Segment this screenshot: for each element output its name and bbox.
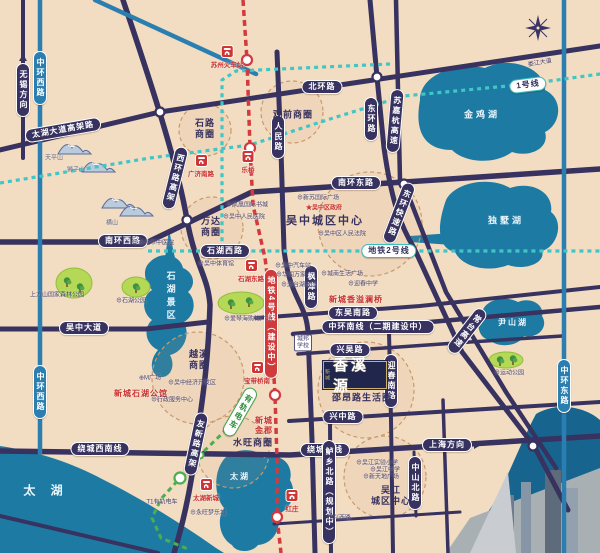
station-icon	[245, 259, 258, 272]
district-label: 观前商圈	[273, 109, 313, 120]
poi-label: ⊕城南生活广场	[321, 271, 363, 279]
lake-label: 尹山湖	[498, 318, 528, 328]
road-label: 上海方向	[422, 438, 472, 452]
lake-label: 独墅湖	[488, 215, 524, 226]
poi-label: ⊕永旺梦乐城	[190, 510, 226, 518]
lake-label: 金鸡湖	[464, 109, 500, 120]
direction-arrow-icon	[474, 441, 481, 449]
road-label: 北环路	[302, 80, 343, 94]
poi-label: ⊕吴中体育馆	[198, 261, 234, 269]
road-label: 东环快速路	[381, 181, 417, 246]
poi-label: 城邦 学校	[294, 334, 312, 351]
station-marker: 红庄	[286, 489, 299, 513]
road-label: 太湖大道高架路	[24, 116, 102, 143]
poi-label: ⊕石湖公园	[116, 298, 146, 306]
station-marker: 广济南路	[188, 154, 214, 178]
station-label: 广济南路	[188, 168, 214, 178]
poi-label: ★吴中区政府	[306, 205, 342, 213]
project-label: 新城 金郡	[255, 416, 273, 436]
project-logo-brand: 新城	[324, 369, 331, 381]
station-icon	[242, 150, 255, 163]
station-marker: 石湖东路	[238, 259, 264, 283]
road-label: 东吴南路	[328, 306, 378, 320]
lake-label: 太湖	[230, 472, 250, 482]
metro-label: 有轨电车	[220, 385, 259, 439]
district-label: 万达 商圈	[201, 216, 221, 239]
road-label: 苏嘉杭高速	[385, 89, 405, 154]
district-label: 吴中城区中心	[286, 215, 364, 229]
poi-label: T1有轨电车	[146, 499, 177, 507]
road-label: 鲈乡北路（规划中）	[322, 440, 336, 544]
station-icon	[200, 478, 213, 491]
district-label: 吴江 城区中心	[371, 485, 411, 508]
station-marker: 宝带桥南	[244, 361, 270, 385]
road-label: 绕城西南线	[71, 442, 130, 456]
road-label: 西环路高架	[160, 145, 189, 210]
station-label: 太湖新城	[193, 492, 219, 502]
station-label: 苏州火车站	[211, 59, 244, 69]
project-label: 新城香溢澜桥	[329, 295, 383, 305]
station-marker: 苏州火车站	[211, 45, 244, 69]
poi-label: ⊕吴中汽车站	[275, 263, 311, 271]
poi-label: ⊕新天地广场	[363, 474, 399, 482]
road-label: 中环西路	[33, 365, 47, 419]
poi-label: 天平山	[45, 155, 63, 163]
poi-label: 娄江大道	[528, 58, 553, 70]
metro-label: 1号线	[509, 76, 548, 94]
road-label: 人民路	[271, 115, 285, 159]
station-label: 红庄	[286, 503, 299, 513]
road-label: 无锡方向	[16, 63, 30, 117]
road-label: 中环东路	[557, 359, 571, 413]
road-label: 中环南线（二期建设中）	[322, 320, 435, 334]
station-label: 石湖东路	[238, 273, 264, 283]
poi-label: ⊕迎春中学	[348, 281, 378, 289]
station-icon	[251, 361, 264, 374]
district-label: 越溪 商圈	[189, 349, 209, 372]
road-label: 东环路	[364, 97, 378, 141]
project-logo-title: 香溪源	[333, 354, 386, 396]
poi-label: ⊕行政服务中心	[151, 397, 193, 405]
station-marker: 乐桥	[242, 150, 255, 174]
station-label: 宝带桥南	[244, 375, 270, 385]
poi-label: ⊕吴中人民医院	[223, 214, 265, 222]
poi-label: ⊕爱琴海购物广场	[224, 316, 272, 324]
road-label: 友新路高架	[182, 411, 209, 477]
road-label: 吴中大道	[59, 321, 109, 335]
poi-label: 江兴西路	[327, 515, 351, 523]
poi-label: ⊕吴中经济开发区	[168, 380, 216, 388]
lake-label: 石湖景区	[164, 271, 175, 323]
road-label: 中环西路	[33, 51, 47, 105]
poi-label: 狮子山	[67, 167, 85, 175]
station-icon	[195, 154, 208, 167]
poi-label: ⊕澹台湖公园	[281, 282, 317, 290]
road-label: 南环东路	[331, 176, 381, 190]
district-label: 石路 商圈	[195, 118, 215, 141]
station-marker: 太湖新城	[193, 478, 219, 502]
direction-arrow-icon	[19, 54, 27, 61]
project-logo: 新城 香溪源	[323, 361, 387, 389]
poi-label: ⊕M广场	[139, 375, 161, 383]
poi-label: ⊕运动公园	[494, 370, 524, 378]
poi-label: 横山	[106, 220, 118, 228]
poi-label: ⊕凤凰国际书城	[226, 202, 268, 210]
label-layer: 中环西路中环西路中环东路无锡方向太湖大道高架路北环路南环西路西环路高架人民路东环…	[0, 0, 600, 553]
station-icon	[286, 489, 299, 502]
lake-label: 太 湖	[23, 484, 68, 499]
metro-label: 地铁2号线	[361, 244, 416, 258]
poi-label: ⊕华润万家	[276, 272, 306, 280]
district-label: 水旺商圈	[233, 437, 273, 448]
road-label: 常台高速	[445, 305, 489, 356]
station-label: 乐桥	[242, 164, 255, 174]
location-map: 中环西路中环西路中环东路无锡方向太湖大道高架路北环路南环西路西环路高架人民路东环…	[0, 0, 600, 553]
road-label: 石湖西路	[200, 244, 250, 258]
station-icon	[221, 45, 234, 58]
poi-label: 上方山国家森林公园	[30, 292, 84, 300]
poi-label: ⊕新苏国际广场	[297, 195, 339, 203]
poi-label: ⊕苏州市中医院	[132, 240, 174, 248]
road-label: 兴中路	[323, 410, 364, 424]
poi-label: ⊕吴中区人民法院	[318, 231, 366, 239]
